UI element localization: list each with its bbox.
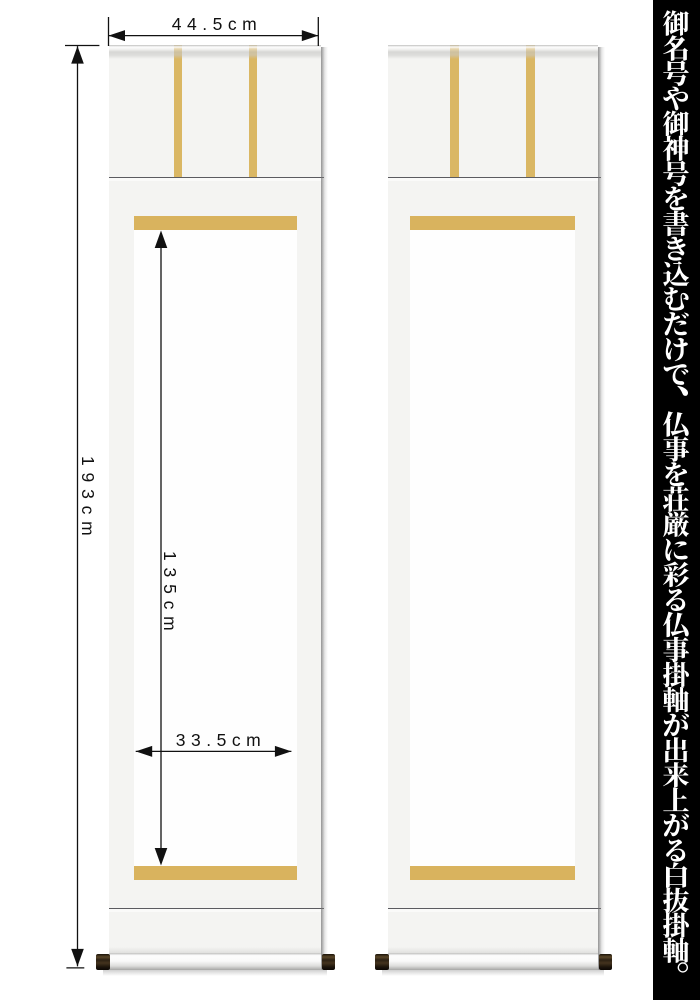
svg-text:33.5cm: 33.5cm — [176, 730, 266, 750]
svg-text:193cm: 193cm — [78, 456, 98, 543]
svg-text:44.5cm: 44.5cm — [172, 14, 262, 34]
